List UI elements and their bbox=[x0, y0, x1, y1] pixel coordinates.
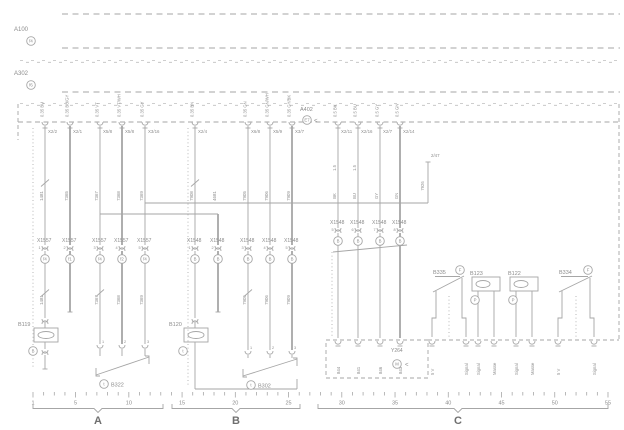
wire-color: BK bbox=[332, 193, 337, 199]
pin-number: 3 bbox=[242, 246, 244, 250]
wire-code: 0.35 BU/GY bbox=[65, 94, 70, 117]
wire-code: 844 bbox=[336, 366, 341, 374]
wire-color: GN bbox=[394, 193, 399, 199]
device-leg bbox=[590, 278, 594, 337]
wire-code: 5 V bbox=[430, 369, 435, 375]
wire-code: 7926 bbox=[420, 181, 425, 191]
module-label-a302: A302 bbox=[14, 71, 29, 77]
wiring-diagram: A100f4A302f6A402E7<2/477926X2/20.35 BU14… bbox=[0, 0, 624, 430]
connector-hook bbox=[491, 341, 497, 344]
ruler-number: 45 bbox=[498, 401, 504, 407]
wire-code: 0.35 GN/WH bbox=[265, 93, 270, 117]
code-circle-label: B bbox=[247, 257, 250, 262]
boundary-connector-label: X6/8 bbox=[251, 129, 261, 134]
code-circle-label: M bbox=[395, 362, 399, 367]
connector-hook bbox=[42, 122, 48, 125]
sensor-element bbox=[38, 332, 54, 339]
pin-number: 3 bbox=[94, 246, 96, 250]
sheet-ref: 2/47 bbox=[431, 153, 440, 158]
ruler-number: 10 bbox=[126, 401, 132, 407]
sensor-element bbox=[188, 332, 204, 339]
component-b335 bbox=[433, 276, 464, 292]
wire-code: 0.5 BK bbox=[333, 104, 338, 117]
connector-label: X1548 bbox=[392, 220, 407, 226]
connector-hook bbox=[289, 351, 295, 354]
wire-code: 1481 bbox=[39, 191, 44, 201]
code-circle-label: P bbox=[512, 298, 515, 303]
ruler-number: 25 bbox=[285, 401, 291, 407]
connector-hook bbox=[529, 341, 535, 344]
twist-mark bbox=[333, 245, 407, 252]
wire-code: Signal bbox=[476, 363, 481, 375]
sensor-element bbox=[476, 281, 490, 288]
connector-hook bbox=[267, 351, 273, 354]
wire-code: 0.5 GY bbox=[375, 104, 380, 117]
code-circle-label: B bbox=[194, 257, 197, 262]
wire-code: 7367 bbox=[94, 191, 99, 201]
connector-hook bbox=[429, 341, 435, 344]
connector-hook bbox=[475, 341, 481, 344]
ruler-number: 5 bbox=[74, 401, 77, 407]
wire-code: 0.35 VT/WH bbox=[117, 94, 122, 117]
wire-code: 846 bbox=[378, 366, 383, 374]
section-label: C bbox=[454, 415, 462, 427]
pin-number: 2 bbox=[272, 346, 274, 350]
pin-number: 8 bbox=[394, 228, 396, 232]
wire-code: Signal bbox=[592, 363, 597, 375]
pin-number: 1 bbox=[39, 246, 41, 250]
arrow-glyph: < bbox=[314, 119, 318, 125]
connector-hook bbox=[355, 122, 361, 125]
arrow-glyph: < bbox=[405, 363, 409, 369]
boundary-connector-label: X2/2 bbox=[48, 129, 58, 134]
wire-size: 1.5 bbox=[352, 164, 357, 170]
component-b322 bbox=[96, 357, 149, 375]
connector-hook bbox=[513, 341, 519, 344]
wire-code: 7905 bbox=[242, 191, 247, 201]
wiring-diagram-page: A100f4A302f6A402E7<2/477926X2/20.35 BU14… bbox=[0, 0, 624, 430]
connector-hook bbox=[267, 122, 273, 125]
component-label-b335: B335 bbox=[433, 270, 446, 276]
wire-code: 841 bbox=[356, 366, 361, 374]
code-circle-label: B bbox=[269, 257, 272, 262]
pin-number: 7 bbox=[374, 228, 376, 232]
device-leg bbox=[558, 291, 562, 337]
boundary-connector-label: X3/16 bbox=[148, 129, 160, 134]
pin-number: 6 bbox=[352, 228, 354, 232]
wire-size: 1.5 bbox=[332, 164, 337, 170]
wire-code: Masse bbox=[492, 362, 497, 375]
boundary-connector-label: X5/9 bbox=[273, 129, 283, 134]
code-circle-label: B bbox=[337, 239, 340, 244]
connector-hook bbox=[397, 341, 403, 344]
boundary-connector-label: X2/7 bbox=[383, 129, 393, 134]
wire-code: 7368 bbox=[116, 295, 121, 305]
connector-hook bbox=[377, 122, 383, 125]
connector-hook bbox=[591, 341, 597, 344]
wire-code: 7368 bbox=[116, 191, 121, 201]
component-label-b302: B302 bbox=[258, 384, 271, 390]
wire-code: Signal bbox=[514, 363, 519, 375]
ruler-number: 40 bbox=[445, 401, 451, 407]
pin-number: 3 bbox=[294, 346, 296, 350]
component-b334 bbox=[559, 276, 592, 292]
wire-color: BU bbox=[352, 193, 357, 199]
pin-number: 4 bbox=[116, 246, 118, 250]
boundary-connector-label: X5/8 bbox=[103, 129, 113, 134]
component-label-b334: B334 bbox=[559, 270, 572, 276]
boundary-connector-label: X2/11 bbox=[341, 129, 353, 134]
wire-code: 7909 bbox=[286, 295, 291, 305]
connector-label: X1548 bbox=[187, 238, 202, 244]
connector-label: X1548 bbox=[330, 220, 345, 226]
component-label-b122: B122 bbox=[508, 271, 521, 277]
boundary-connector-label: X2/14 bbox=[403, 129, 415, 134]
wire-code: Signal bbox=[464, 363, 469, 375]
code-circle-label: B bbox=[379, 239, 382, 244]
code-circle-label: f6 bbox=[29, 83, 33, 88]
code-circle-label: F bbox=[459, 268, 462, 273]
connector-hook bbox=[119, 122, 125, 125]
pin-number: 2 bbox=[64, 246, 66, 250]
device-leg bbox=[432, 291, 436, 337]
wire-code: 0.35 BN bbox=[190, 102, 195, 117]
connector-hook bbox=[192, 122, 198, 125]
code-circle-label: P bbox=[474, 298, 477, 303]
ruler-number: 50 bbox=[552, 401, 558, 407]
code-circle-label: F bbox=[587, 268, 590, 273]
connector-hook bbox=[119, 345, 125, 348]
section-label: B bbox=[232, 415, 240, 427]
wire-code: 4681 bbox=[212, 191, 217, 201]
pin-number: 2 bbox=[212, 246, 214, 250]
connector-hook bbox=[355, 341, 361, 344]
wire-code: 0.35 GY bbox=[140, 101, 145, 117]
pin-number: 1 bbox=[189, 246, 191, 250]
ruler-number: 30 bbox=[339, 401, 345, 407]
pin-number: 4 bbox=[264, 246, 266, 250]
connector-label: X1548 bbox=[284, 238, 299, 244]
connector-hook bbox=[245, 122, 251, 125]
pin-number: 1 bbox=[102, 340, 104, 344]
connector-label: X1548 bbox=[372, 220, 387, 226]
wire-code: 7365 bbox=[64, 191, 69, 201]
pin-number: 1 bbox=[250, 346, 252, 350]
connector-hook bbox=[142, 122, 148, 125]
ruler-number: 35 bbox=[392, 401, 398, 407]
component-y264-box bbox=[326, 340, 428, 378]
connector-hook bbox=[289, 122, 295, 125]
sensor-element bbox=[514, 281, 528, 288]
wire-code: 0.5 BU bbox=[353, 104, 358, 117]
section-bracket bbox=[318, 404, 608, 413]
code-circle-label: f4 bbox=[143, 257, 147, 262]
code-circle-label: f2 bbox=[120, 257, 124, 262]
code-circle-label: B bbox=[399, 239, 402, 244]
boundary-connector-label: X2/16 bbox=[361, 129, 373, 134]
connector-label: X1548 bbox=[240, 238, 255, 244]
pin-number: 2 bbox=[124, 340, 126, 344]
component-b302 bbox=[243, 359, 297, 376]
connector-hook bbox=[67, 122, 73, 125]
section-label: A bbox=[94, 415, 102, 427]
connector-label: X1557 bbox=[62, 238, 77, 244]
boundary-connector-label: X3/7 bbox=[295, 129, 305, 134]
wire-code: 7906 bbox=[264, 191, 269, 201]
connector-label: X1557 bbox=[92, 238, 107, 244]
ruler-number: 15 bbox=[179, 401, 185, 407]
ruler-number: 20 bbox=[232, 401, 238, 407]
wire-code: 0.35 GN bbox=[243, 101, 248, 117]
component-label-b322: B322 bbox=[111, 383, 124, 389]
section-bracket bbox=[33, 404, 163, 413]
connector-hook bbox=[97, 122, 103, 125]
module-label-a402: A402 bbox=[300, 107, 313, 113]
component-label-b123: B123 bbox=[470, 271, 483, 277]
wire-code: 5 V bbox=[556, 369, 561, 375]
wire-code: Masse bbox=[530, 362, 535, 375]
connector-label: X1557 bbox=[137, 238, 152, 244]
code-circle-label: f4 bbox=[43, 257, 47, 262]
pin-number: 3 bbox=[147, 340, 149, 344]
wire-code: 7369 bbox=[139, 295, 144, 305]
code-circle-label: f4 bbox=[98, 257, 102, 262]
connector-label: X1548 bbox=[350, 220, 365, 226]
connector-hook bbox=[97, 345, 103, 348]
connector-label: X1557 bbox=[37, 238, 52, 244]
connector-hook bbox=[463, 341, 469, 344]
connector-hook bbox=[142, 345, 148, 348]
pin-number: 5 bbox=[286, 246, 288, 250]
code-circle-label: B bbox=[32, 349, 35, 354]
wire-code: 7909 bbox=[286, 191, 291, 201]
connector-hook bbox=[335, 341, 341, 344]
connector-label: X1548 bbox=[210, 238, 225, 244]
device-leg bbox=[462, 278, 466, 337]
code-circle-label: B bbox=[357, 239, 360, 244]
code-circle-label: B bbox=[291, 257, 294, 262]
wire-code: 0.35 BU bbox=[40, 102, 45, 117]
connector-label: X1557 bbox=[114, 238, 129, 244]
wire-code: 7908 bbox=[189, 191, 194, 201]
pin-number: 5 bbox=[139, 246, 141, 250]
module-label-a100: A100 bbox=[14, 27, 29, 33]
component-label-b119: B119 bbox=[18, 322, 30, 328]
wire-code: 7369 bbox=[139, 191, 144, 201]
wire-code: 0.5 GN bbox=[395, 104, 400, 117]
boundary-connector-label: X2/4 bbox=[198, 129, 208, 134]
connector-hook bbox=[377, 341, 383, 344]
connector-hook bbox=[555, 341, 561, 344]
connector-hook bbox=[397, 122, 403, 125]
wire-color: GY bbox=[374, 193, 379, 199]
boundary-connector-label: X2/1 bbox=[73, 129, 83, 134]
wire-code: 7906 bbox=[264, 295, 269, 305]
code-circle-label: B bbox=[217, 257, 220, 262]
pin-number: 5 bbox=[332, 228, 334, 232]
code-circle-label: E7 bbox=[304, 118, 310, 123]
boundary-connector-label: X5/8 bbox=[125, 129, 135, 134]
code-circle-label: f1 bbox=[68, 257, 72, 262]
connector-label: X1548 bbox=[262, 238, 277, 244]
connector-hook bbox=[245, 351, 251, 354]
component-label-y264: Y264 bbox=[391, 348, 403, 354]
component-label-b120: B120 bbox=[169, 322, 182, 328]
wire-code: 0.35 GY/BK bbox=[287, 95, 292, 117]
code-circle-label: f4 bbox=[29, 39, 33, 44]
wire-code: 0.35 VT bbox=[95, 102, 100, 117]
connector-hook bbox=[335, 122, 341, 125]
